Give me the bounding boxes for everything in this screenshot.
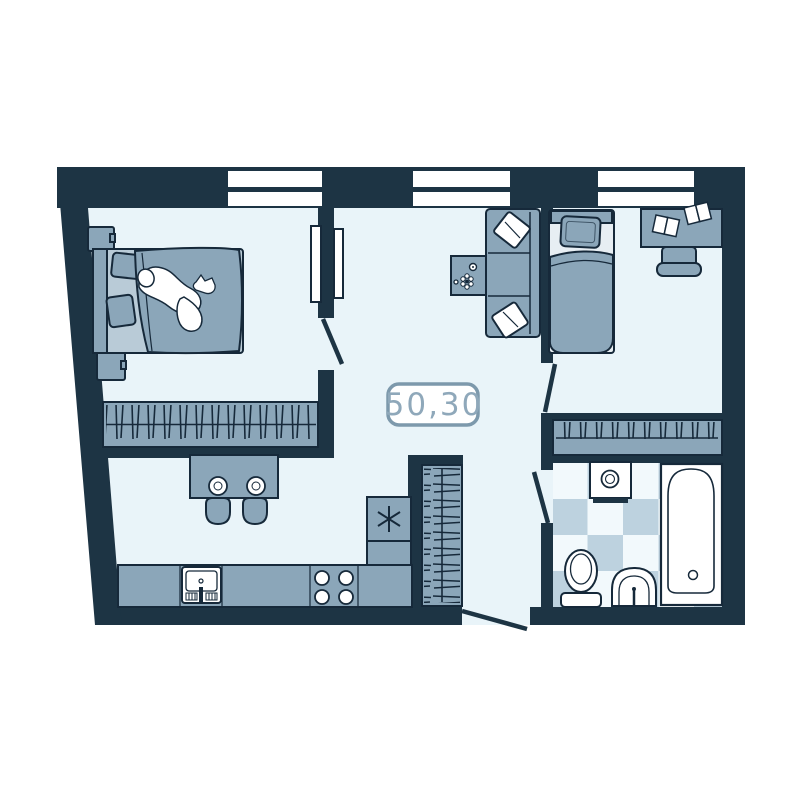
area-label-text: 50,30 [385, 387, 484, 423]
sofa-icon [486, 209, 540, 339]
double-bed-icon [93, 248, 243, 353]
desk-chair-icon [657, 247, 701, 276]
bar-stool-icon [243, 498, 267, 524]
blanket [550, 251, 613, 353]
wardrobe-icon [103, 402, 318, 447]
coffee-table-icon [451, 256, 486, 295]
faucet [199, 587, 203, 603]
room-hallway [422, 465, 462, 606]
window-icon [598, 171, 694, 206]
bar-table-icon [190, 455, 278, 498]
wall-bedroom1-lower [318, 370, 334, 458]
floor-plan: 50,30 [0, 0, 800, 800]
single-bed-icon [549, 210, 614, 353]
wall-below-bedroom2-door [541, 413, 553, 470]
window-icon [228, 171, 322, 206]
closet-icon [422, 465, 462, 606]
drain [689, 571, 698, 580]
bar-stool-icon [206, 498, 230, 524]
wall-bathroom-top [553, 455, 722, 463]
nightstand-knob [110, 234, 115, 242]
pillow-icon [106, 294, 136, 327]
toilet-icon [561, 550, 601, 607]
wall-segment-right [722, 208, 745, 625]
wall-segment-bottom-right [530, 607, 745, 625]
bathtub-icon [661, 464, 722, 605]
washing-machine-icon [590, 462, 631, 503]
area-label: 50,30 [385, 384, 484, 425]
wall-bedroom2-bottom [553, 413, 722, 420]
wash-basin-icon [612, 568, 656, 606]
window-icon [413, 171, 510, 206]
plate-icon [209, 477, 227, 495]
refrigerator-icon [367, 497, 411, 565]
floor-plan-page: 50,30 [0, 0, 800, 800]
nightstand-knob [121, 361, 126, 369]
wardrobe-icon [553, 420, 722, 455]
windows [228, 171, 694, 206]
kitchen-counter [118, 565, 412, 607]
wall-bathroom-left [541, 523, 553, 607]
wall-closet-top [422, 455, 463, 465]
kitchen-sink-icon [182, 567, 221, 603]
wall-segment-bottom-left [95, 607, 462, 625]
plate-icon [247, 477, 265, 495]
